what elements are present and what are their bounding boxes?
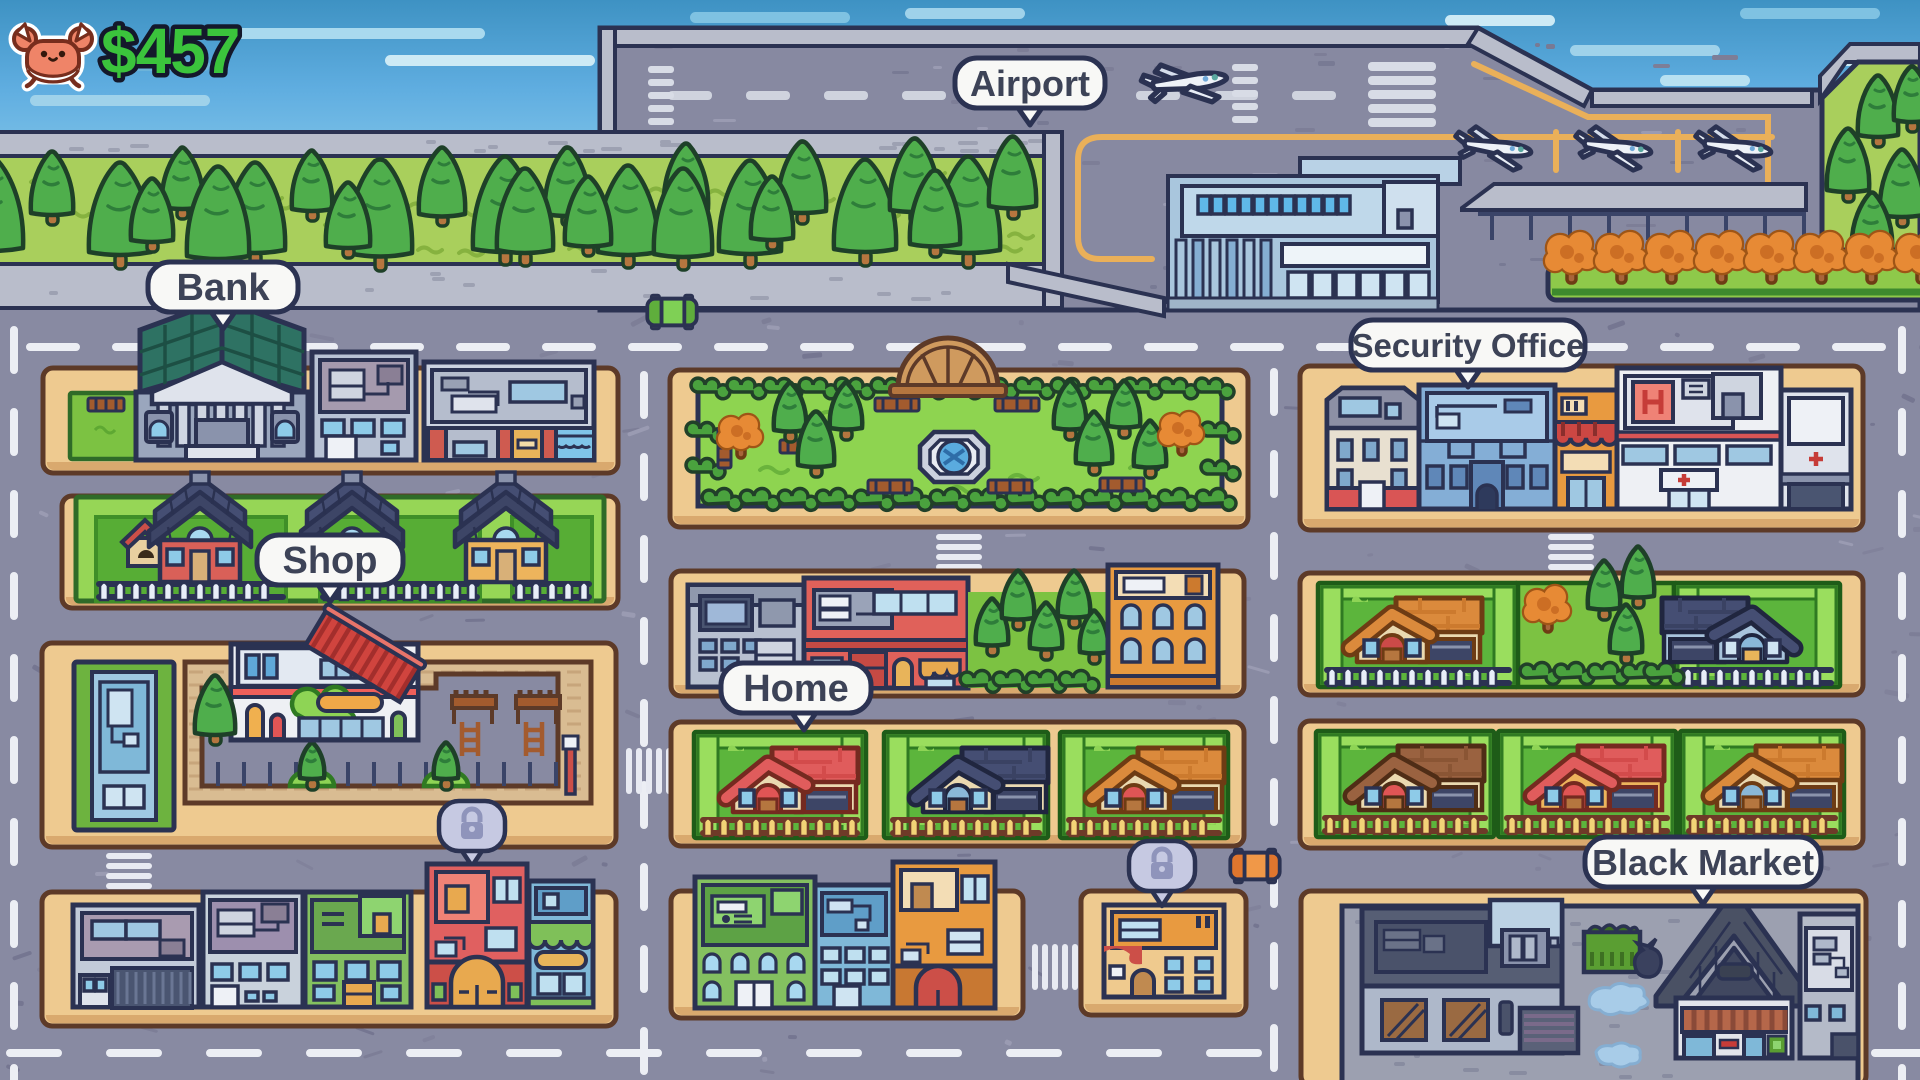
svg-text:Security Office: Security Office — [1352, 327, 1585, 364]
svg-text:Shop: Shop — [283, 540, 378, 582]
svg-text:Bank: Bank — [177, 267, 271, 309]
svg-text:Black Market: Black Market — [1592, 842, 1814, 883]
svg-text:Airport: Airport — [970, 63, 1090, 104]
svg-text:Home: Home — [743, 668, 849, 710]
svg-text:$457: $457 — [101, 15, 239, 87]
